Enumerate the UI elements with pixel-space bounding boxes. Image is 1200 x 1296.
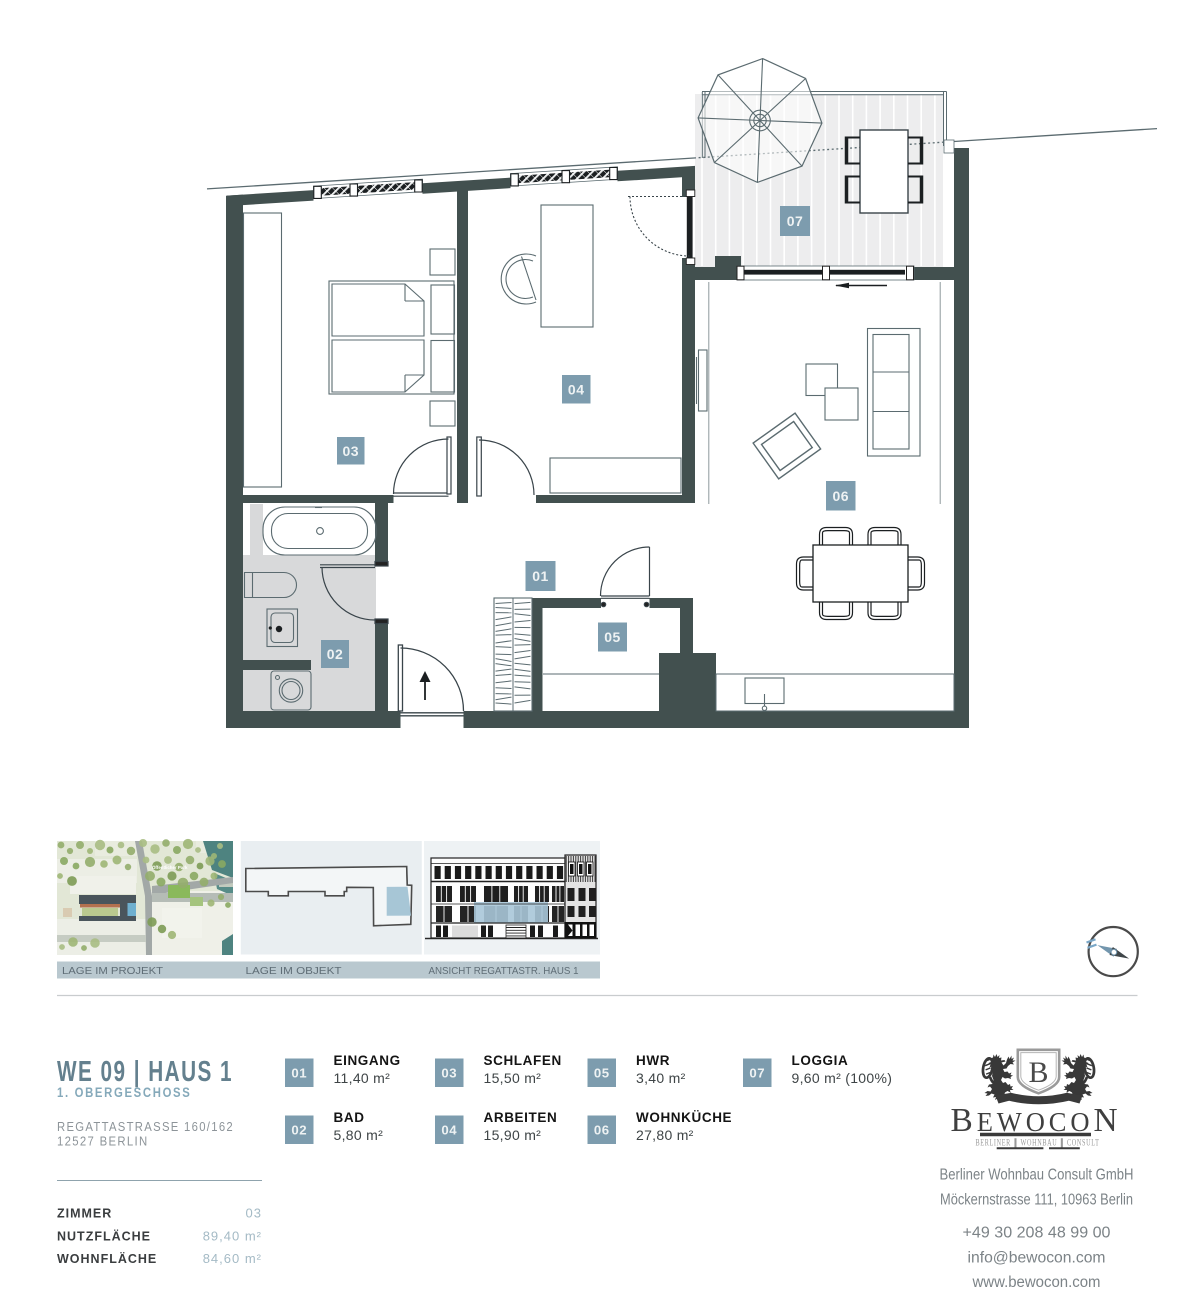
svg-text:02: 02 (291, 1123, 307, 1138)
svg-text:89,40 m²: 89,40 m² (203, 1229, 262, 1244)
svg-text:BAD: BAD (334, 1110, 365, 1125)
svg-text:9,60 m² (100%): 9,60 m² (100%) (792, 1070, 893, 1086)
svg-text:SCHLAFEN: SCHLAFEN (484, 1053, 562, 1068)
svg-text:05: 05 (594, 1066, 610, 1081)
svg-text:06: 06 (594, 1123, 610, 1138)
svg-text:Berliner Wohnbau Consult GmbH: Berliner Wohnbau Consult GmbH (940, 1167, 1134, 1184)
svg-text:WOHNFLÄCHE: WOHNFLÄCHE (57, 1251, 157, 1266)
svg-text:07: 07 (787, 213, 804, 229)
svg-text:Öffentlicher Park: Öffentlicher Park (152, 865, 188, 870)
svg-text:27,80 m²: 27,80 m² (636, 1127, 694, 1143)
svg-text:04: 04 (568, 381, 585, 397)
svg-text:REGATTASTRASSE 160/162: REGATTASTRASSE 160/162 (57, 1119, 234, 1134)
svg-text:www.bewocon.com: www.bewocon.com (972, 1274, 1101, 1291)
svg-text:12527 BERLIN: 12527 BERLIN (57, 1134, 149, 1149)
svg-text:5,80 m²: 5,80 m² (334, 1127, 384, 1143)
svg-text:15,50 m²: 15,50 m² (484, 1070, 542, 1086)
svg-text:NUTZFLÄCHE: NUTZFLÄCHE (57, 1229, 151, 1244)
svg-text:03: 03 (343, 443, 360, 459)
svg-text:ANSICHT REGATTASTR. HAUS 1: ANSICHT REGATTASTR. HAUS 1 (429, 965, 579, 977)
svg-text:HWR: HWR (636, 1053, 670, 1068)
svg-text:WE 09 | HAUS 1: WE 09 | HAUS 1 (57, 1056, 233, 1088)
svg-text:+49 30 208 48 99 00: +49 30 208 48 99 00 (963, 1225, 1111, 1242)
svg-text:11,40 m²: 11,40 m² (334, 1070, 391, 1086)
svg-text:02: 02 (327, 646, 344, 662)
svg-text:LAGE IM OBJEKT: LAGE IM OBJEKT (246, 965, 343, 977)
svg-text:01: 01 (532, 568, 549, 584)
svg-text:Möckernstrasse 111, 10963 Berl: Möckernstrasse 111, 10963 Berlin (940, 1192, 1133, 1209)
svg-text:LAGE IM PROJEKT: LAGE IM PROJEKT (62, 965, 164, 977)
svg-text:ZIMMER: ZIMMER (57, 1207, 112, 1221)
svg-text:info@bewocon.com: info@bewocon.com (968, 1250, 1106, 1267)
svg-text:WOHNKÜCHE: WOHNKÜCHE (636, 1110, 732, 1125)
svg-text:01: 01 (291, 1066, 307, 1081)
svg-text:04: 04 (441, 1123, 457, 1138)
svg-text:03: 03 (246, 1206, 262, 1221)
svg-text:84,60 m²: 84,60 m² (203, 1251, 262, 1266)
svg-text:B: B (1028, 1056, 1048, 1089)
svg-text:EINGANG: EINGANG (334, 1053, 401, 1068)
svg-text:15,90 m²: 15,90 m² (484, 1127, 542, 1143)
svg-text:06: 06 (833, 488, 850, 504)
svg-text:3,40 m²: 3,40 m² (636, 1070, 686, 1086)
svg-text:ARBEITEN: ARBEITEN (484, 1110, 558, 1125)
svg-text:07: 07 (749, 1066, 765, 1081)
svg-text:03: 03 (441, 1066, 457, 1081)
svg-text:LOGGIA: LOGGIA (792, 1053, 849, 1068)
svg-text:BERLINER ❚ WOHNBAU ❚ CONSULT: BERLINER ❚ WOHNBAU ❚ CONSULT (976, 1138, 1100, 1149)
svg-text:1. OBERGESCHOSS: 1. OBERGESCHOSS (57, 1085, 192, 1100)
svg-text:05: 05 (604, 629, 621, 645)
